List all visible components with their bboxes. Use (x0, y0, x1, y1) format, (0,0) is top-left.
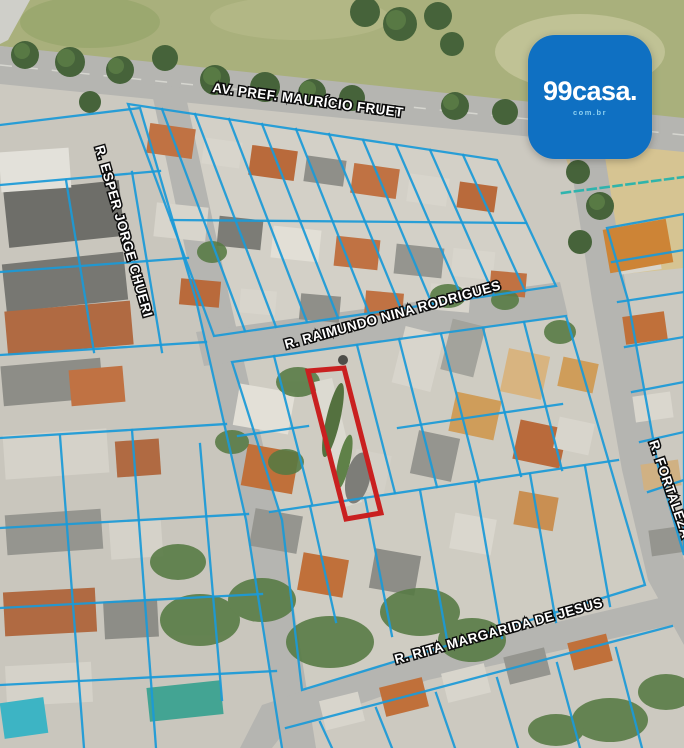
logo-badge[interactable]: 99casa. com.br (528, 35, 652, 159)
map-canvas[interactable]: AV. PREF. MAURÍCIO FRUET R. ESPER JORGE … (0, 0, 684, 748)
logo-tagline: com.br (573, 108, 607, 117)
logo-text: 99casa. (543, 78, 637, 105)
